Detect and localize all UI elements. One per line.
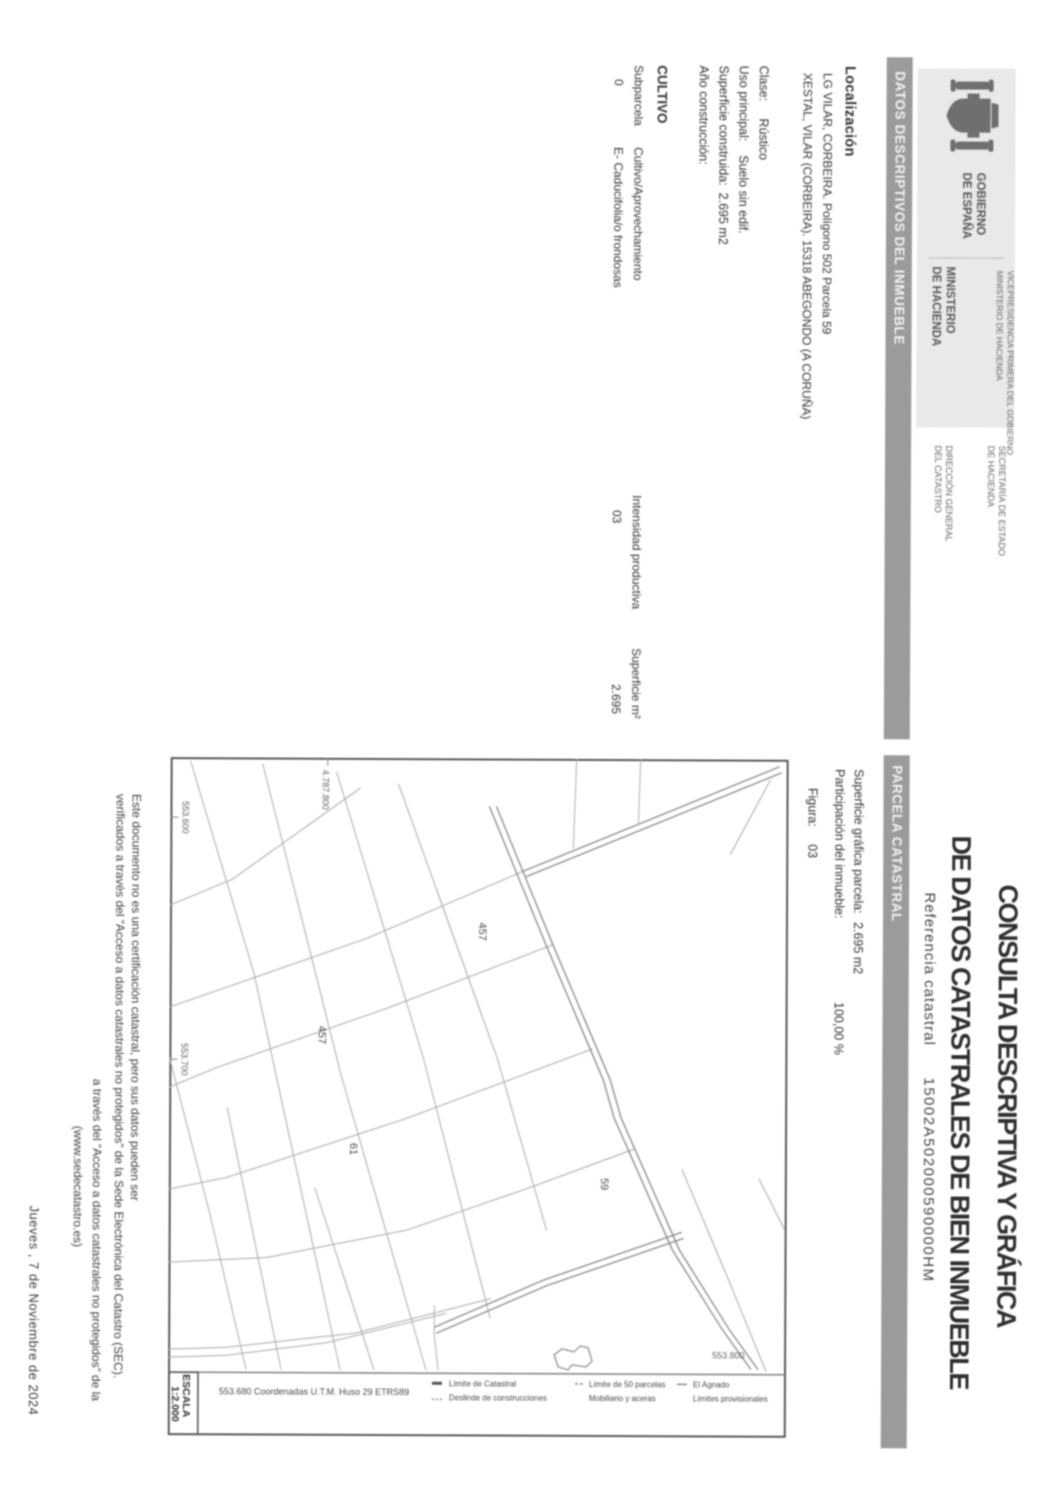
svg-text:61: 61 — [347, 1143, 359, 1155]
svg-text:El Agnado: El Agnado — [693, 1380, 730, 1389]
svg-text:553.680 Coordenadas U.T.M. Hus: 553.680 Coordenadas U.T.M. Huso 29 ETRS8… — [219, 1386, 409, 1397]
svg-text:553.600: 553.600 — [180, 801, 190, 834]
svg-text:ESCALA: ESCALA — [180, 1374, 192, 1418]
svg-text:1:2.000: 1:2.000 — [169, 1386, 181, 1422]
svg-text:Deslinde de construcciones: Deslinde de construcciones — [449, 1393, 547, 1402]
svg-text:Límite de Catastral: Límite de Catastral — [449, 1379, 516, 1388]
svg-text:59: 59 — [598, 1178, 610, 1190]
svg-text:Límite de 50 parcelas: Límite de 50 parcelas — [589, 1380, 666, 1389]
svg-text:457: 457 — [315, 1026, 327, 1044]
svg-text:Límites provisionales: Límites provisionales — [693, 1394, 768, 1403]
svg-text:553.800: 553.800 — [712, 1350, 745, 1360]
svg-text:457: 457 — [476, 922, 488, 940]
svg-text:Mobiliario y aceras: Mobiliario y aceras — [589, 1394, 656, 1403]
svg-text:553.700: 553.700 — [179, 1043, 189, 1076]
svg-text:4.787.800: 4.787.800 — [320, 770, 330, 810]
